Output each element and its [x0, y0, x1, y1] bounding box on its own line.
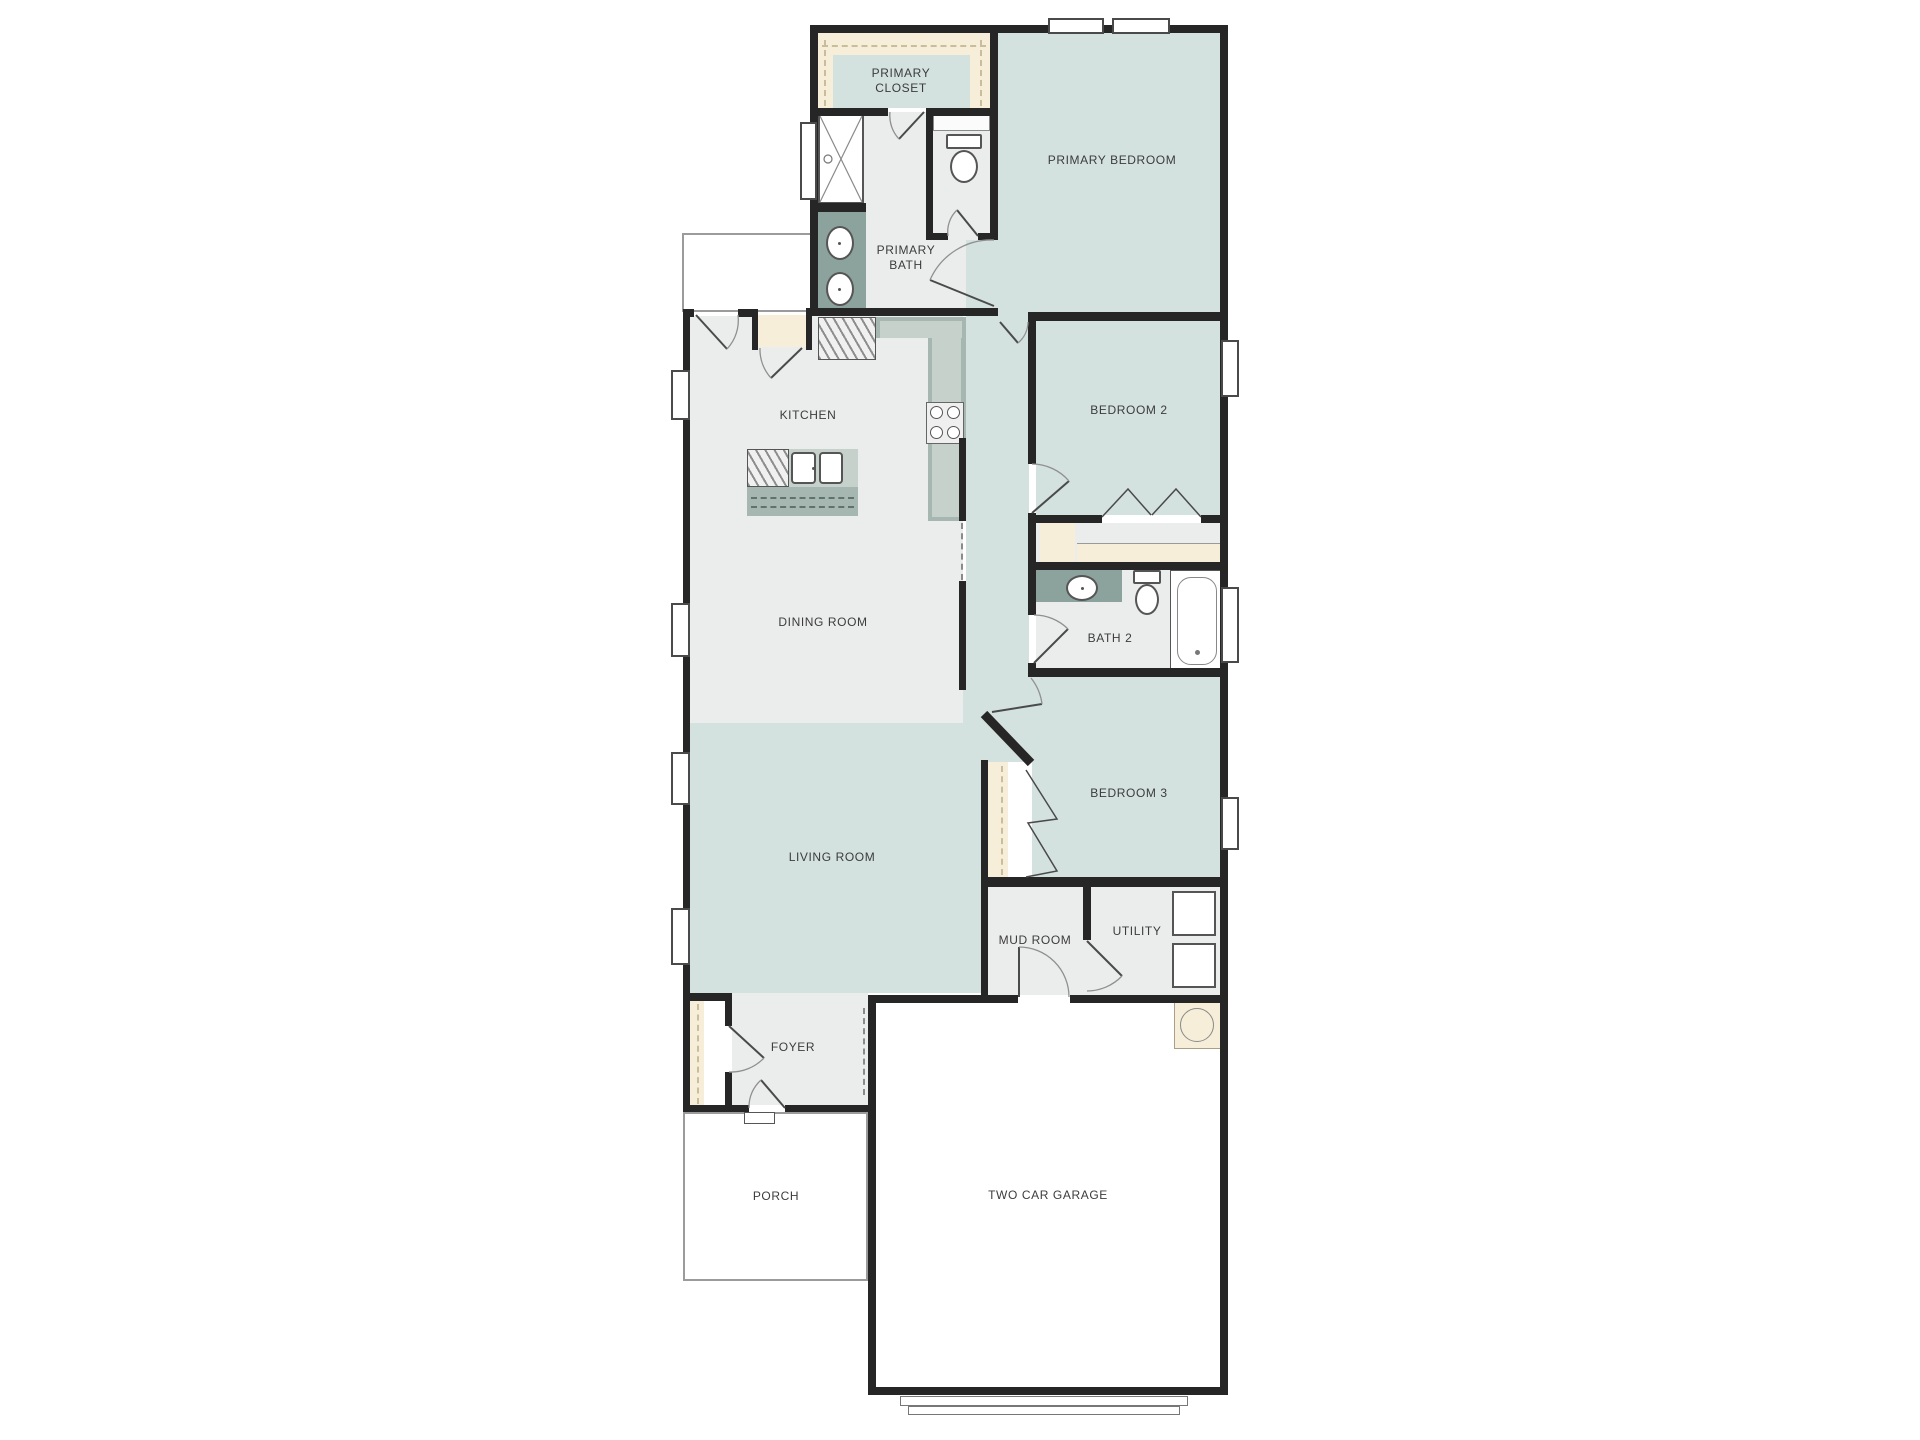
label-bedroom-2: BEDROOM 2 [1090, 403, 1167, 417]
label-living-room: LIVING ROOM [789, 850, 876, 864]
label-porch: PORCH [753, 1189, 799, 1203]
label-foyer: FOYER [771, 1040, 815, 1054]
label-primary-closet: PRIMARY CLOSET [859, 66, 943, 96]
door-swings [0, 0, 1920, 1440]
label-primary-bath: PRIMARY BATH [864, 243, 948, 273]
angled-wall [984, 714, 1031, 763]
label-dining-room: DINING ROOM [778, 615, 867, 629]
label-bedroom-3: BEDROOM 3 [1090, 786, 1167, 800]
label-mud-room: MUD ROOM [999, 933, 1072, 947]
bifold-doors [1026, 489, 1201, 877]
label-garage: TWO CAR GARAGE [988, 1188, 1108, 1202]
label-bath-2: BATH 2 [1088, 631, 1133, 645]
label-primary-bedroom: PRIMARY BEDROOM [1048, 153, 1177, 167]
floor-plan: PRIMARY CLOSET PRIMARY BATH PRIMARY BEDR… [0, 0, 1920, 1440]
label-kitchen: KITCHEN [780, 408, 837, 422]
label-utility: UTILITY [1113, 924, 1162, 938]
